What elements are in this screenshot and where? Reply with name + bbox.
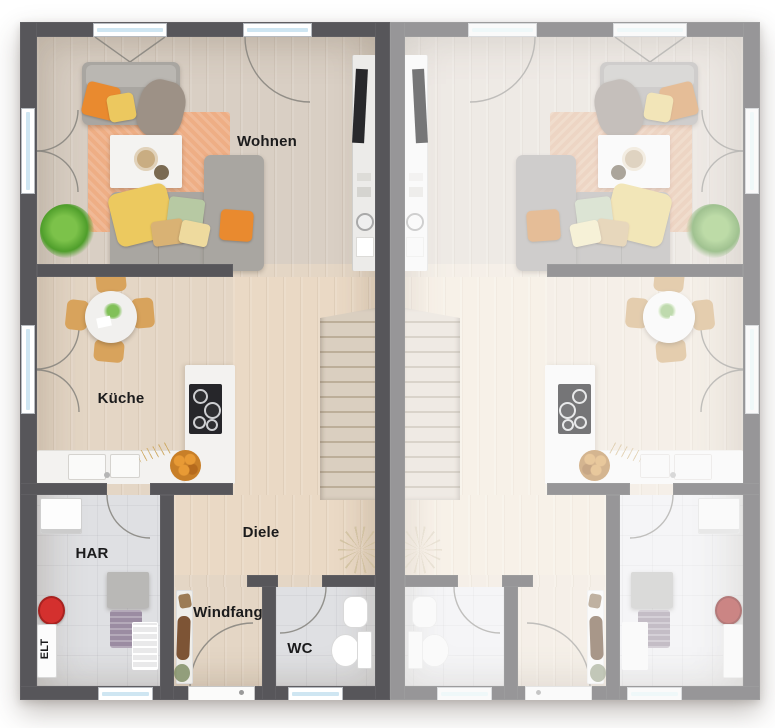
wc-sink xyxy=(412,596,437,628)
pillow-green xyxy=(574,196,613,227)
electrical-panel xyxy=(723,624,743,678)
wall-kitchen-utility-b xyxy=(150,483,233,495)
window-glass xyxy=(472,28,533,32)
sofa-top-backrest xyxy=(604,65,694,87)
french-door-kitchen-arc-2 xyxy=(37,370,79,412)
dining-table xyxy=(85,291,137,343)
window-glass xyxy=(292,692,339,696)
shelf-box xyxy=(406,237,424,257)
window-tilt-lines xyxy=(95,37,165,62)
french-door-kitchen-arc-1 xyxy=(37,327,79,369)
unit-right xyxy=(390,22,760,700)
window-wc-bottom xyxy=(437,687,492,700)
floor-utility-room xyxy=(620,495,743,686)
burner xyxy=(562,419,574,431)
wall-living-kitchen xyxy=(37,264,233,277)
throw-yellow xyxy=(602,182,673,249)
decor-vase xyxy=(154,165,169,180)
burner xyxy=(559,402,576,419)
french-door-living-arc-2 xyxy=(37,151,78,192)
door-handle xyxy=(536,690,541,695)
tv-screen xyxy=(352,69,368,144)
wall-top xyxy=(20,22,390,37)
pillow-beige xyxy=(594,218,629,247)
decor-tray xyxy=(622,147,646,171)
sofa-bottom-seat xyxy=(572,192,670,270)
wall-utility-vestibule xyxy=(160,495,174,700)
wall-wc-top-b xyxy=(322,575,375,587)
french-door-living-left xyxy=(21,108,35,194)
shelf-item-2 xyxy=(357,187,371,197)
staircase xyxy=(320,308,375,500)
entry-door-arc xyxy=(527,623,590,686)
french-door-living-arc-2 xyxy=(702,151,743,192)
burner xyxy=(574,416,587,429)
french-door-kitchen-left xyxy=(21,325,35,414)
burner xyxy=(206,419,218,431)
ambient-shadow xyxy=(405,37,743,686)
door-handle xyxy=(239,690,244,695)
french-door-living-arc-1 xyxy=(702,110,743,151)
vinyl-disc xyxy=(406,213,424,231)
table-paper xyxy=(96,316,112,329)
wall-kitchen-utility-a xyxy=(673,483,760,495)
wall-kitchen-utility-b xyxy=(547,483,630,495)
cooktop xyxy=(189,384,222,434)
window-glass xyxy=(26,112,30,190)
kitchen-island xyxy=(545,365,595,483)
wall-party xyxy=(390,22,405,700)
sofa-chaise xyxy=(516,155,576,271)
pillow-yellow xyxy=(643,92,674,123)
decor-twig xyxy=(607,441,643,463)
faucet xyxy=(670,472,676,478)
wall-living-kitchen xyxy=(547,264,743,277)
potted-plant xyxy=(686,204,740,258)
wall-vestibule-wc xyxy=(262,575,276,700)
staircase xyxy=(405,308,460,500)
door-swing-arcs xyxy=(390,22,760,700)
wardrobe-panel xyxy=(587,590,604,684)
window-glass xyxy=(247,28,308,32)
toilet-bowl xyxy=(420,634,449,667)
wall-utility-vestibule xyxy=(606,495,620,700)
heat-pump-unit xyxy=(107,572,149,608)
tv-sideboard xyxy=(404,55,428,271)
fruit-bowl xyxy=(579,450,610,481)
rug xyxy=(550,112,692,232)
window-glass xyxy=(617,28,683,32)
terrace-door-arc xyxy=(245,37,310,102)
dining-chair-north xyxy=(653,268,685,293)
coat xyxy=(589,616,604,660)
shelf-item-2 xyxy=(409,187,423,197)
kitchen-sink-2 xyxy=(110,454,140,478)
dining-chair-west xyxy=(690,299,715,331)
window-glass xyxy=(750,329,754,410)
pillow-orange-2 xyxy=(526,209,561,242)
washing-machine xyxy=(40,498,82,534)
terrace-door-top xyxy=(243,23,312,37)
washing-machine xyxy=(698,498,740,534)
shelf-box xyxy=(356,237,374,257)
laundry-basket xyxy=(638,610,670,648)
table-paper xyxy=(668,316,684,329)
kitchen-counter xyxy=(545,450,743,484)
tv-screen xyxy=(412,69,428,144)
french-door-kitchen-arc-1 xyxy=(701,327,743,369)
wc-door-arc xyxy=(280,587,326,633)
window-glass xyxy=(97,28,163,32)
room-label-vestibule: Windfang xyxy=(178,604,278,621)
tv-sideboard xyxy=(352,55,376,271)
room-label-electrical: ELT xyxy=(39,628,55,670)
terrace-door-top xyxy=(468,23,537,37)
floor-base xyxy=(405,37,743,686)
shoes xyxy=(588,593,602,609)
utility-door-arc xyxy=(107,495,150,538)
utility-door-arc xyxy=(630,495,673,538)
wall-kitchen-utility-a xyxy=(20,483,107,495)
sofa-top xyxy=(600,62,698,125)
burner xyxy=(572,389,587,404)
pillow-orange xyxy=(658,80,699,121)
french-door-kitchen-left xyxy=(745,325,759,414)
floor-plan: Wohnen Küche Diele Windfang WC HAR ELT xyxy=(20,22,760,700)
drying-rack xyxy=(622,622,648,670)
wall-wc-top-a xyxy=(247,575,278,587)
room-label-living: Wohnen xyxy=(222,133,312,150)
wall-party xyxy=(375,22,390,700)
shelf-item-1 xyxy=(409,173,423,181)
french-door-living-left xyxy=(745,108,759,194)
wc-door-arc xyxy=(454,587,500,633)
window-glass xyxy=(631,692,678,696)
wall-wc-top-a xyxy=(502,575,533,587)
window-glass xyxy=(26,329,30,410)
entry-door xyxy=(188,686,255,700)
toilet-tank xyxy=(408,631,423,669)
window-wc-bottom xyxy=(288,687,343,700)
room-label-utility: HAR xyxy=(57,545,127,562)
terrace-door-arc xyxy=(470,37,535,102)
table-plant xyxy=(657,303,677,319)
window-glass xyxy=(102,692,149,696)
pillow-yellow xyxy=(106,92,137,123)
fire-extinguisher xyxy=(715,596,742,625)
window-living-top xyxy=(93,23,167,37)
potted-plant xyxy=(40,204,94,258)
window-glass xyxy=(750,112,754,190)
burner xyxy=(193,416,206,429)
window-tilt-lines xyxy=(615,37,685,62)
wall-wc-top-b xyxy=(405,575,458,587)
drying-rack xyxy=(132,622,158,670)
entry-door xyxy=(525,686,592,700)
coat xyxy=(176,616,191,660)
fire-extinguisher xyxy=(38,596,65,625)
pillow-pale-yellow xyxy=(569,219,602,248)
wall-vestibule-wc xyxy=(504,575,518,700)
room-label-kitchen: Küche xyxy=(86,390,156,407)
kitchen-sink-1 xyxy=(674,454,712,480)
heat-pump-unit xyxy=(631,572,673,608)
wall-bottom xyxy=(390,686,760,700)
decor-vase xyxy=(611,165,626,180)
floor-vestibule xyxy=(518,587,606,686)
coffee-table xyxy=(598,135,670,188)
floor-living-room xyxy=(405,37,743,264)
room-label-hallway: Diele xyxy=(216,524,306,541)
dining-chair-south xyxy=(655,339,687,364)
burner xyxy=(204,402,221,419)
french-door-kitchen-arc-2 xyxy=(701,370,743,412)
cooktop xyxy=(558,384,591,434)
floor-hallway-lower xyxy=(405,495,606,575)
window-utility-bottom xyxy=(98,687,153,700)
window-glass xyxy=(441,692,488,696)
room-label-wc: WC xyxy=(275,640,325,657)
fruit-bowl xyxy=(170,450,201,481)
page-background: { "labels": { "living": "Wohnen", "kitch… xyxy=(0,0,775,728)
window-living-top xyxy=(613,23,687,37)
drape-blanket xyxy=(590,75,649,142)
window-utility-bottom xyxy=(627,687,682,700)
toilet-tank xyxy=(357,631,372,669)
unit-left: Wohnen Küche Diele Windfang WC HAR ELT xyxy=(20,22,390,700)
toilet-bowl xyxy=(331,634,360,667)
coffee-table xyxy=(110,135,182,188)
vestibule-plant xyxy=(590,664,606,682)
faucet xyxy=(104,472,110,478)
dining-chair-east xyxy=(625,297,650,329)
dining-table xyxy=(643,291,695,343)
vinyl-disc xyxy=(356,213,374,231)
burner xyxy=(193,389,208,404)
pillow-orange-2 xyxy=(219,209,254,242)
entry-door-arc xyxy=(190,623,253,686)
shelf-item-1 xyxy=(357,173,371,181)
wc-sink xyxy=(343,596,368,628)
wall-top xyxy=(390,22,760,37)
floor-hallway xyxy=(405,277,547,575)
vestibule-plant xyxy=(174,664,190,682)
kitchen-sink-1 xyxy=(68,454,106,480)
floor-wc xyxy=(405,587,504,686)
dried-plant-decor xyxy=(398,526,442,574)
kitchen-sink-2 xyxy=(640,454,670,478)
wall-left xyxy=(743,22,760,700)
french-door-living-arc-1 xyxy=(37,110,78,151)
